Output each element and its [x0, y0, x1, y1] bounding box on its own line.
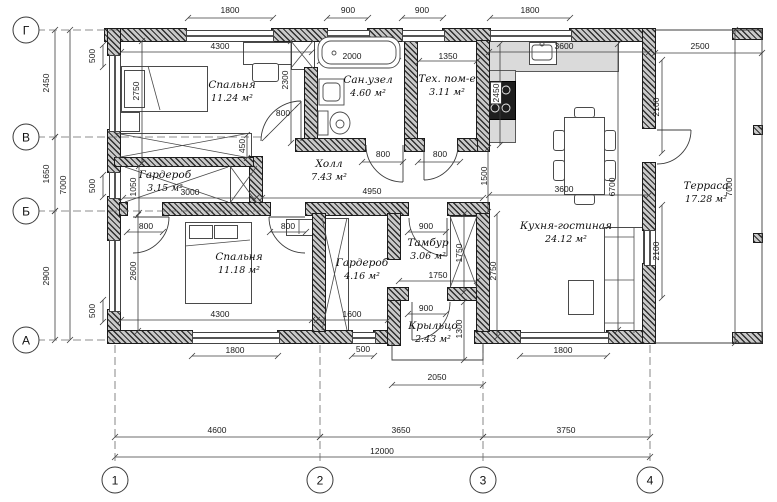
dim-label: 500 — [87, 49, 97, 63]
axis-bubble-4: 4 — [637, 467, 664, 494]
dim-label: 2750 — [488, 262, 498, 281]
room-area: 24.12 м² — [520, 234, 612, 246]
room-name: Крыльцо — [408, 320, 457, 334]
room-area: 7.43 м² — [311, 172, 347, 184]
dim-label: 800 — [376, 149, 390, 159]
dim-label: 2100 — [651, 98, 661, 117]
dim-label: 1750 — [454, 244, 464, 263]
room-label: Кухня-гостиная24.12 м² — [520, 220, 612, 246]
dim-label: 1800 — [226, 345, 245, 355]
dim-label: 800 — [276, 108, 290, 118]
dim-label: 7000 — [58, 176, 68, 195]
room-name: Гардероб — [139, 169, 191, 183]
dim-label: 1350 — [439, 51, 458, 61]
dim-label: 500 — [356, 344, 370, 354]
floor-plan-canvas: 1800900900180025002450165029007000500500… — [0, 0, 777, 502]
axis-bubble-3: 3 — [470, 467, 497, 494]
axis-bubble-Б: Б — [13, 198, 40, 225]
dim-label: 2500 — [691, 41, 710, 51]
dim-label: 1800 — [521, 5, 540, 15]
dim-label: 800 — [433, 149, 447, 159]
dim-label: 800 — [281, 221, 295, 231]
dim-label: 12000 — [370, 446, 394, 456]
dim-label: 2450 — [41, 74, 51, 93]
room-area: 3.11 м² — [418, 87, 475, 99]
dim-label: 2000 — [343, 51, 362, 61]
dim-label: 900 — [419, 303, 433, 313]
dim-label: 1650 — [41, 165, 51, 184]
room-area: 11.18 м² — [215, 265, 262, 277]
room-name: Гардероб — [336, 257, 388, 271]
dim-label: 4600 — [208, 425, 227, 435]
room-area: 3.15 м² — [139, 183, 191, 195]
dim-label: 2300 — [280, 71, 290, 90]
axis-bubble-В: В — [13, 124, 40, 151]
room-label: Тех. пом-е3.11 м² — [418, 73, 475, 99]
dim-label: 800 — [139, 221, 153, 231]
room-label: Крыльцо2.43 м² — [408, 320, 457, 346]
room-name: Кухня-гостиная — [520, 220, 612, 234]
room-label: Терраса17.28 м² — [683, 180, 728, 206]
dim-label: 2600 — [128, 262, 138, 281]
dim-label: 2050 — [428, 372, 447, 382]
dim-label: 500 — [87, 179, 97, 193]
axis-bubble-1: 1 — [102, 467, 129, 494]
dim-label: 4300 — [211, 41, 230, 51]
room-area: 4.60 м² — [343, 88, 392, 100]
dim-label: 1500 — [479, 167, 489, 186]
dim-label: 4300 — [211, 309, 230, 319]
dim-label: 1800 — [554, 345, 573, 355]
dim-label: 2900 — [41, 267, 51, 286]
axis-bubble-А: А — [13, 327, 40, 354]
dim-label: 1050 — [128, 178, 138, 197]
dim-label: 1750 — [429, 270, 448, 280]
dim-label: 450 — [237, 139, 247, 153]
room-label: Тамбур3.06 м² — [407, 237, 448, 263]
room-name: Тех. пом-е — [418, 73, 475, 87]
dim-label: 1600 — [343, 309, 362, 319]
dim-label: 4950 — [363, 186, 382, 196]
dim-label: 3650 — [392, 425, 411, 435]
dim-label: 2100 — [651, 242, 661, 261]
dim-label: 3600 — [555, 184, 574, 194]
dim-label: 3750 — [557, 425, 576, 435]
axis-bubble-Г: Г — [13, 17, 40, 44]
room-area: 11.24 м² — [208, 93, 255, 105]
room-area: 4.16 м² — [336, 271, 388, 283]
dim-label: 2450 — [491, 83, 501, 104]
dim-label: 6700 — [607, 178, 617, 197]
dim-label: 2750 — [131, 82, 141, 101]
room-area: 2.43 м² — [408, 334, 457, 346]
room-label: Сан.узел4.60 м² — [343, 74, 392, 100]
room-name: Холл — [311, 158, 347, 172]
dim-label: 500 — [87, 304, 97, 318]
room-label: Холл7.43 м² — [311, 158, 347, 184]
axis-bubble-2: 2 — [307, 467, 334, 494]
room-name: Тамбур — [407, 237, 448, 251]
dim-label: 1800 — [221, 5, 240, 15]
room-label: Гардероб3.15 м² — [139, 169, 191, 195]
room-name: Спальня — [215, 251, 262, 265]
dim-label: 3600 — [555, 41, 574, 51]
room-area: 3.06 м² — [407, 251, 448, 263]
room-area: 17.28 м² — [683, 194, 728, 206]
room-name: Терраса — [683, 180, 728, 194]
dim-label: 900 — [415, 5, 429, 15]
dim-label: 900 — [419, 221, 433, 231]
room-name: Сан.узел — [343, 74, 392, 88]
room-label: Спальня11.18 м² — [215, 251, 262, 277]
room-label: Гардероб4.16 м² — [336, 257, 388, 283]
dim-label: 900 — [341, 5, 355, 15]
room-name: Спальня — [208, 79, 255, 93]
room-label: Спальня11.24 м² — [208, 79, 255, 105]
